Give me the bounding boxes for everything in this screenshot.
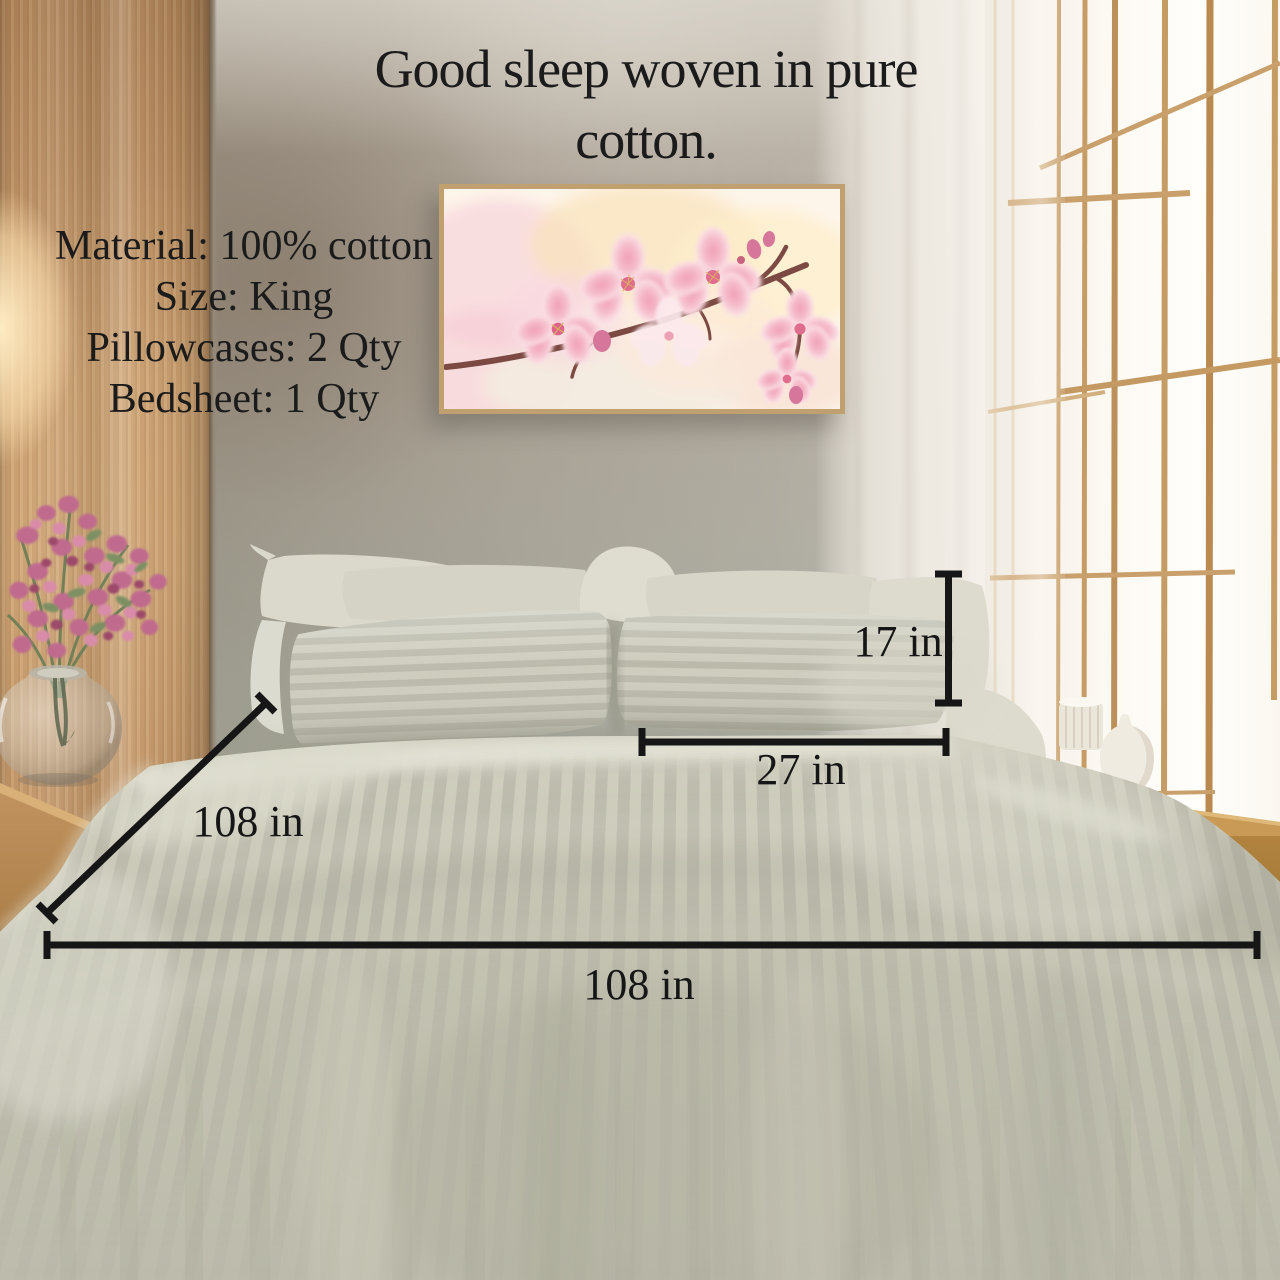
svg-text:108 in: 108 in	[192, 797, 303, 846]
svg-text:108 in: 108 in	[583, 960, 694, 1009]
svg-text:27 in: 27 in	[756, 745, 845, 794]
svg-text:17 in: 17 in	[853, 617, 942, 666]
